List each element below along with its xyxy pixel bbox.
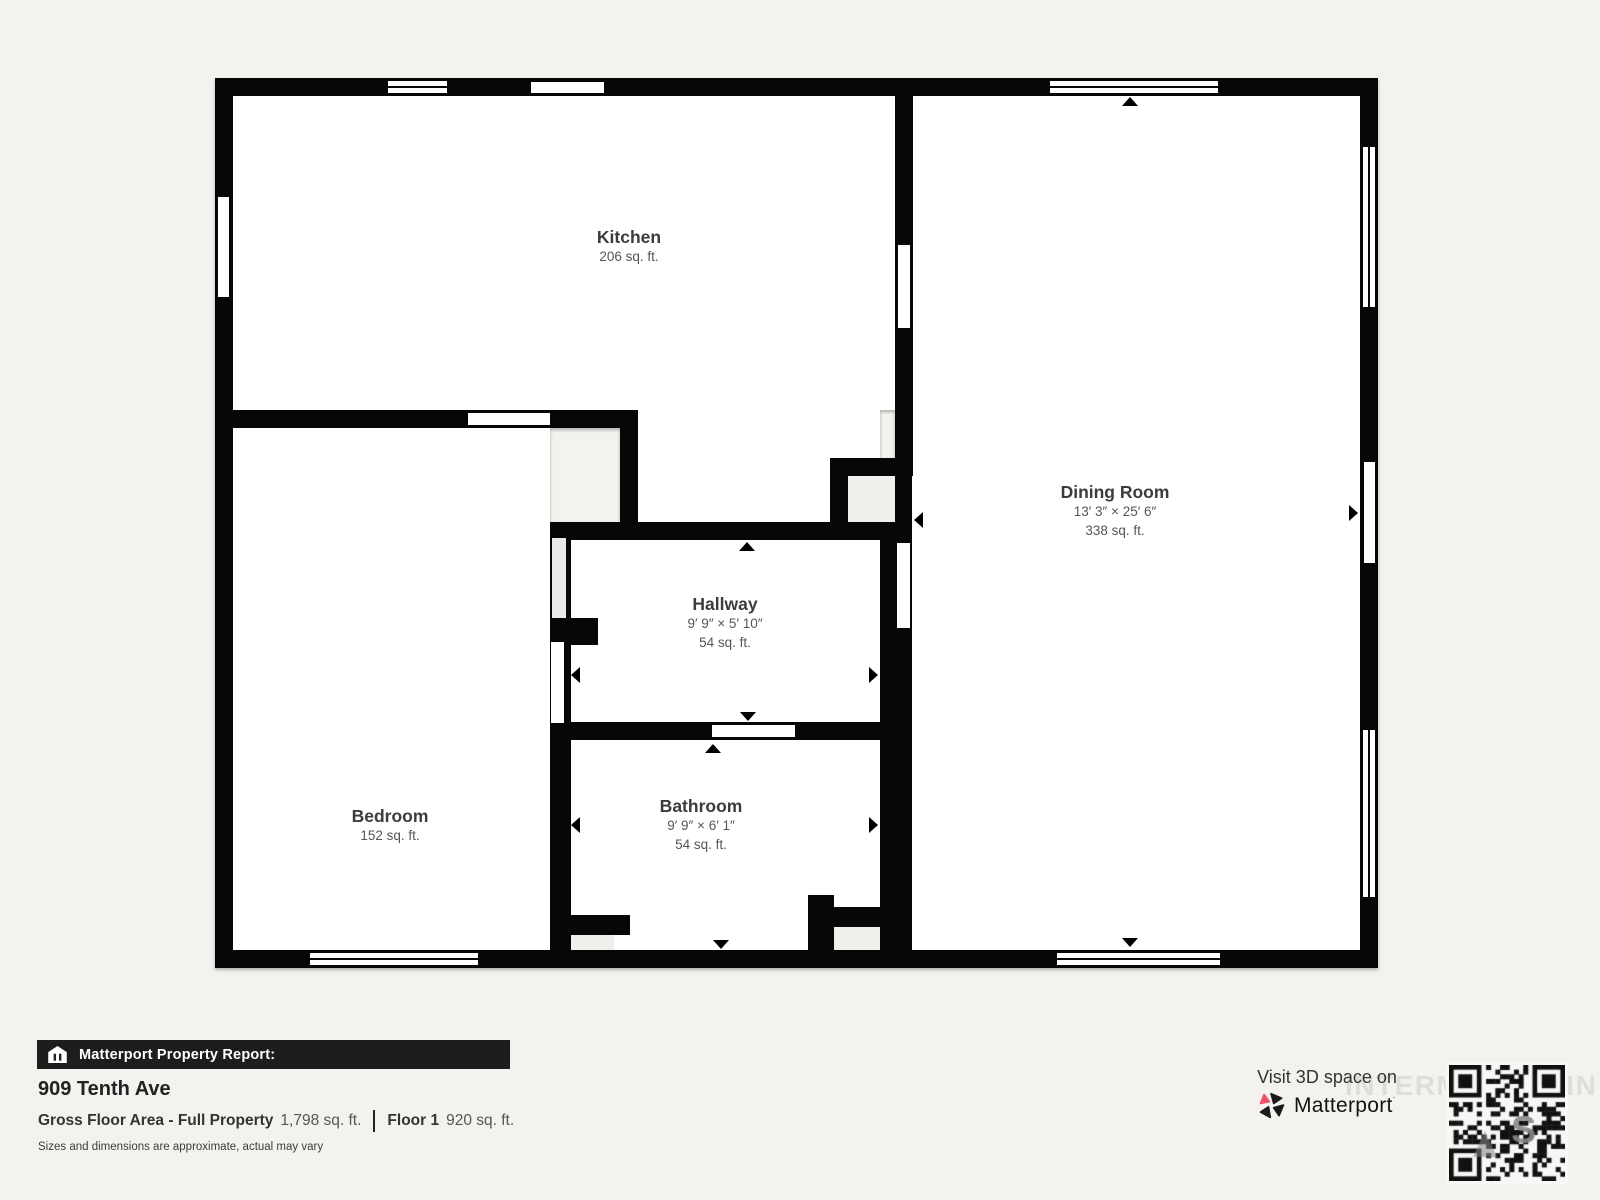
door-arrow-bedroom-lower [571,667,580,683]
wall-bedroom-top [215,410,638,428]
floor-label: Floor 1 [387,1112,439,1130]
wall-door-stub [550,618,598,645]
window-dining-top [1050,81,1218,93]
door-bedroom-lower [551,642,564,723]
dining-room-dims: 13′ 3″ × 25′ 6″ [1061,502,1170,521]
closet-area [848,476,895,522]
door-hallway-dining [897,543,910,628]
hallway-dims: 9′ 9″ × 5′ 10″ [687,614,762,633]
window-kitchen-left [218,197,229,297]
gross-floor-area-label: Gross Floor Area - Full Property [38,1112,273,1130]
house-icon [48,1046,67,1063]
wall-bath-stub-right-vert [808,895,834,950]
kitchen-label: Kitchen 206 sq. ft. [597,227,661,266]
dining-room-label: Dining Room 13′ 3″ × 25′ 6″ 338 sq. ft. [1061,482,1170,540]
wall-hallway-top [553,522,912,540]
window-dining-right-lower [1363,730,1375,897]
window-bedroom-top [468,413,550,425]
window-dining-bottom [1057,953,1220,965]
door-arrow-closet [914,512,923,528]
bathroom-area: 54 sq. ft. [660,835,743,854]
wall-bath-stub-left [550,915,630,935]
report-banner-title: Matterport Property Report: [79,1047,275,1063]
door-arrow-dining-bottom [1122,938,1138,947]
door-arrow-bathroom-exit [713,940,729,949]
page: Kitchen 206 sq. ft. Dining Room 13′ 3″ ×… [0,0,1600,1200]
opening-kitchen-top [531,82,604,93]
door-hallway-bathroom [712,725,795,737]
qr-code-canvas [1449,1065,1565,1181]
kitchen-floor [233,96,895,410]
matterport-logo-row: Matterport˙ [1232,1092,1422,1120]
door-arrow-hallway-bottom [740,712,756,721]
door-dining-right [1364,462,1375,563]
door-arrow-dining-entry [1122,97,1138,106]
door-arrow-hallway-top [739,542,755,551]
window-bedroom-bottom [310,953,478,965]
gross-floor-area-value: 1,798 sq. ft. [280,1112,361,1130]
bedroom-floor [233,428,550,950]
dining-room-name: Dining Room [1061,482,1170,502]
metrics-divider [373,1110,375,1132]
dining-room-area: 338 sq. ft. [1061,521,1170,540]
visit-3d-space-text: Visit 3D space on [1232,1067,1422,1088]
matterport-pinwheel-icon [1258,1092,1286,1120]
property-address: 909 Tenth Ave [38,1078,171,1101]
bedroom-area: 152 sq. ft. [352,826,429,845]
bedroom-name: Bedroom [352,806,429,826]
bedroom-label: Bedroom 152 sq. ft. [352,806,429,845]
disclaimer-text: Sizes and dimensions are approximate, ac… [38,1141,323,1153]
bathroom-label: Bathroom 9′ 9″ × 6′ 1″ 54 sq. ft. [660,796,743,854]
bathroom-dims: 9′ 9″ × 6′ 1″ [660,816,743,835]
floor-plan: Kitchen 206 sq. ft. Dining Room 13′ 3″ ×… [0,0,1600,1200]
bathroom-name: Bathroom [660,796,743,816]
hallway-name: Hallway [687,594,762,614]
door-arrow-bathroom-top [705,744,721,753]
window-dining-right-upper [1363,147,1375,307]
matterport-wordmark: Matterport˙ [1294,1094,1396,1118]
hallway-label: Hallway 9′ 9″ × 5′ 10″ 54 sq. ft. [687,594,762,652]
report-banner: Matterport Property Report: [37,1040,510,1069]
floor-value: 920 sq. ft. [446,1112,514,1130]
hallway-area: 54 sq. ft. [687,633,762,652]
kitchen-name: Kitchen [597,227,661,247]
wall-kitchen-mid [620,410,638,540]
door-arrow-bathroom-left [571,817,580,833]
kitchen-area: 206 sq. ft. [597,247,661,266]
door-arrow-dining-side [1349,505,1358,521]
opening-kitchen-dining [898,245,910,328]
window-kitchen-top [388,81,447,93]
door-arrow-bathroom-right [869,817,878,833]
qr-code [1446,1062,1568,1184]
door-bedroom-upper [552,538,566,618]
floor-area-metrics: Gross Floor Area - Full Property 1,798 s… [38,1110,514,1132]
door-arrow-hallway-right [869,667,878,683]
